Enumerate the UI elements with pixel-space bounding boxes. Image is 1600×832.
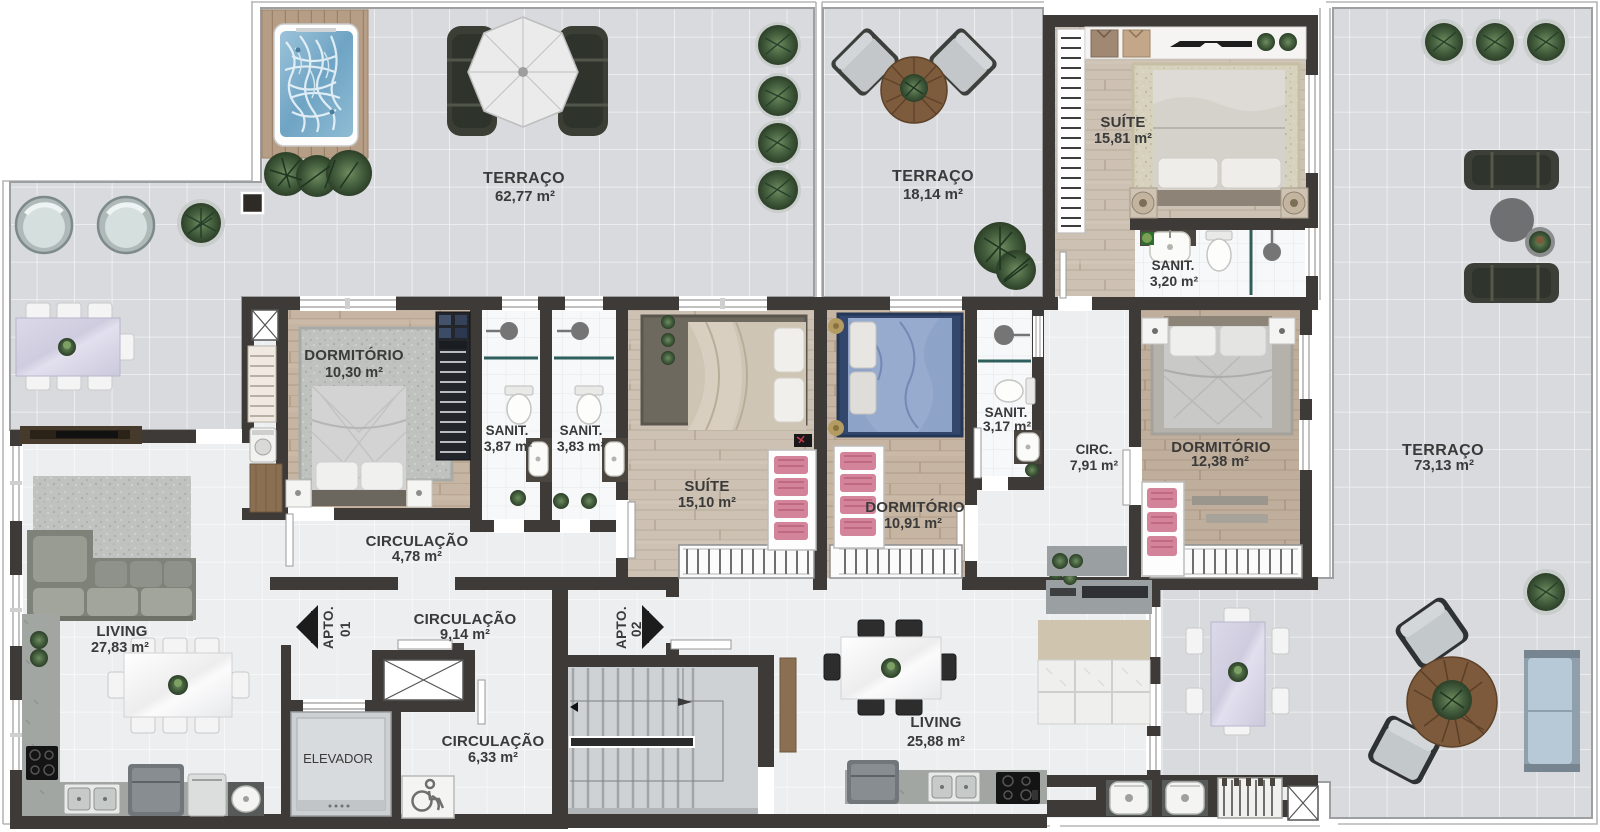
svg-text:02: 02 bbox=[629, 621, 644, 637]
svg-text:SANIT.: SANIT. bbox=[1152, 258, 1195, 273]
svg-text:ELEVADOR: ELEVADOR bbox=[303, 751, 373, 766]
svg-text:DORMITÓRIO: DORMITÓRIO bbox=[865, 498, 965, 516]
svg-text:LIVING: LIVING bbox=[96, 623, 147, 640]
svg-text:18,14 m²: 18,14 m² bbox=[903, 186, 963, 203]
svg-text:15,10 m²: 15,10 m² bbox=[678, 495, 736, 511]
svg-text:7,91 m²: 7,91 m² bbox=[1070, 457, 1119, 473]
svg-text:CIRCULAÇÃO: CIRCULAÇÃO bbox=[442, 732, 545, 750]
svg-text:APTO.: APTO. bbox=[614, 606, 629, 649]
svg-text:12,38 m²: 12,38 m² bbox=[1191, 454, 1249, 470]
svg-text:3,87 m²: 3,87 m² bbox=[484, 438, 533, 454]
svg-text:4,78 m²: 4,78 m² bbox=[392, 549, 442, 565]
svg-text:CIRC.: CIRC. bbox=[1076, 442, 1113, 457]
svg-text:9,14 m²: 9,14 m² bbox=[440, 627, 490, 643]
svg-text:10,91 m²: 10,91 m² bbox=[884, 516, 942, 532]
svg-text:62,77 m²: 62,77 m² bbox=[495, 188, 555, 205]
svg-text:01: 01 bbox=[338, 621, 353, 637]
svg-text:APTO.: APTO. bbox=[321, 606, 336, 649]
svg-text:3,83 m²: 3,83 m² bbox=[557, 438, 606, 454]
svg-text:15,81 m²: 15,81 m² bbox=[1094, 131, 1152, 147]
svg-text:CIRCULAÇÃO: CIRCULAÇÃO bbox=[414, 610, 517, 628]
svg-text:SANIT.: SANIT. bbox=[560, 423, 603, 438]
svg-text:3,17 m²: 3,17 m² bbox=[983, 418, 1032, 434]
svg-text:SUÍTE: SUÍTE bbox=[1100, 114, 1145, 131]
svg-text:73,13 m²: 73,13 m² bbox=[1414, 457, 1474, 474]
svg-text:TERRAÇO: TERRAÇO bbox=[483, 170, 565, 187]
svg-text:TERRAÇO: TERRAÇO bbox=[892, 168, 974, 185]
svg-text:DORMITÓRIO: DORMITÓRIO bbox=[304, 346, 404, 364]
svg-text:CIRCULAÇÃO: CIRCULAÇÃO bbox=[366, 532, 469, 550]
svg-text:SUÍTE: SUÍTE bbox=[684, 478, 729, 495]
svg-text:27,83 m²: 27,83 m² bbox=[91, 640, 149, 656]
svg-text:LIVING: LIVING bbox=[910, 714, 961, 731]
svg-text:10,30 m²: 10,30 m² bbox=[325, 365, 383, 381]
svg-text:25,88 m²: 25,88 m² bbox=[907, 734, 965, 750]
svg-text:6,33 m²: 6,33 m² bbox=[468, 750, 518, 766]
svg-text:3,20 m²: 3,20 m² bbox=[1150, 273, 1199, 289]
svg-text:SANIT.: SANIT. bbox=[486, 423, 529, 438]
